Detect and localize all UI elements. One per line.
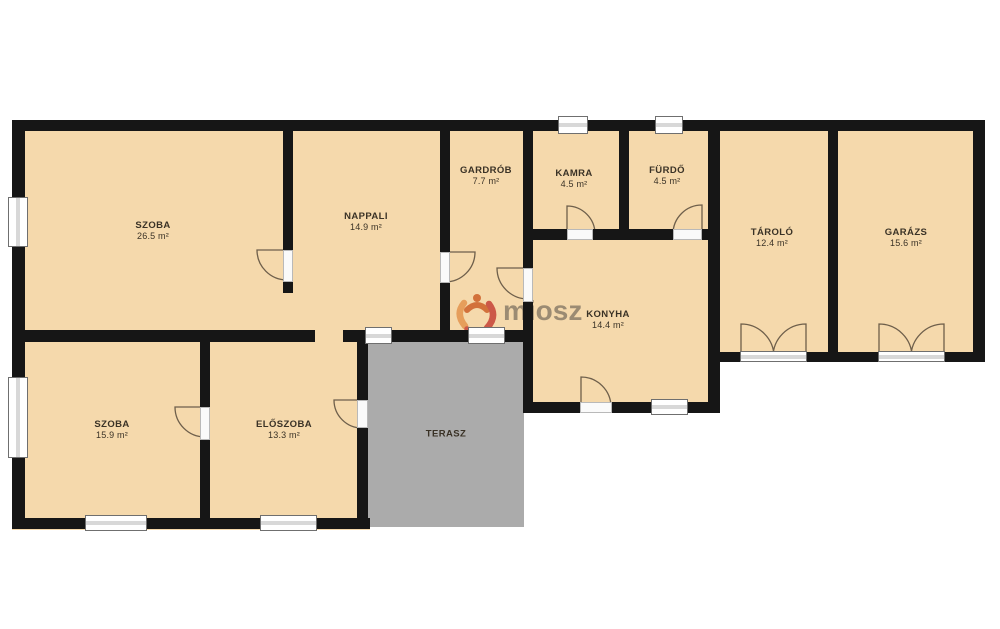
window: [8, 197, 28, 247]
floorplan-canvas: mioszSZOBA26.5 m²NAPPALI14.9 m²GARDRÓB7.…: [0, 0, 1000, 629]
room-area: 15.9 m²: [94, 430, 129, 441]
room-name: GARÁZS: [885, 227, 928, 238]
wall: [523, 120, 533, 268]
wall: [283, 282, 293, 293]
room-name: KAMRA: [555, 168, 592, 179]
room-name: TERASZ: [426, 429, 466, 440]
wall: [440, 120, 450, 252]
room-name: NAPPALI: [344, 211, 388, 222]
room-area: 13.3 m²: [256, 430, 312, 441]
wall: [392, 330, 468, 342]
room-name: SZOBA: [94, 419, 129, 430]
room-label-terasz: TERASZ: [426, 429, 466, 440]
window-glass: [559, 123, 587, 127]
room-area: 14.4 m²: [586, 320, 630, 331]
room-name: KONYHA: [586, 309, 630, 320]
door-sill: [440, 252, 450, 283]
room-label-gardrob: GARDRÓB7.7 m²: [460, 165, 512, 187]
wall: [612, 402, 653, 413]
wall: [12, 247, 25, 377]
room-label-konyha: KONYHA14.4 m²: [586, 309, 630, 331]
room-area: 4.5 m²: [555, 179, 592, 190]
wall: [357, 428, 368, 529]
door-sill: [283, 250, 293, 282]
room-area: 26.5 m²: [135, 231, 170, 242]
window: [85, 515, 147, 531]
wall: [973, 120, 985, 362]
room-name: SZOBA: [135, 220, 170, 231]
room-label-nappali: NAPPALI14.9 m²: [344, 211, 388, 233]
window-glass: [656, 123, 682, 127]
door-sill: [673, 229, 702, 240]
window: [468, 327, 505, 344]
room-area: 14.9 m²: [344, 222, 388, 233]
window: [655, 116, 683, 134]
window: [878, 351, 945, 362]
wall: [807, 352, 878, 362]
window-glass: [16, 378, 20, 457]
window: [365, 327, 392, 344]
room-name: FÜRDŐ: [649, 165, 685, 176]
room-name: GARDRÓB: [460, 165, 512, 176]
room-name: ELŐSZOBA: [256, 419, 312, 430]
room-label-tarolo: TÁROLÓ12.4 m²: [751, 227, 794, 249]
window-glass: [366, 334, 391, 338]
room-label-szoba-1: SZOBA26.5 m²: [135, 220, 170, 242]
wall: [440, 283, 450, 342]
room-area: 15.6 m²: [885, 238, 928, 249]
room-label-szoba-2: SZOBA15.9 m²: [94, 419, 129, 441]
window-glass: [16, 198, 20, 246]
room-label-eloszoba: ELŐSZOBA13.3 m²: [256, 419, 312, 441]
door-sill: [200, 407, 210, 440]
door-swing-arcs: [0, 0, 1000, 629]
wall: [828, 120, 838, 362]
window-glass: [879, 355, 944, 359]
window-glass: [86, 521, 146, 525]
room-area: 12.4 m²: [751, 238, 794, 249]
window-glass: [469, 334, 504, 338]
door-sill: [357, 400, 368, 428]
wall: [12, 330, 315, 342]
wall: [12, 120, 985, 131]
wall: [12, 120, 25, 197]
wall: [200, 440, 210, 529]
window: [260, 515, 317, 531]
room-label-kamra: KAMRA4.5 m²: [555, 168, 592, 190]
door-sill: [580, 402, 612, 413]
wall: [12, 458, 25, 529]
window-glass: [652, 405, 687, 409]
wall: [619, 120, 629, 240]
door-sill: [567, 229, 593, 240]
room-label-garazs: GARÁZS15.6 m²: [885, 227, 928, 249]
wall: [283, 120, 293, 250]
window: [740, 351, 807, 362]
window: [558, 116, 588, 134]
window-glass: [261, 521, 316, 525]
wall: [200, 340, 210, 407]
window: [8, 377, 28, 458]
window: [651, 399, 688, 415]
wall: [523, 302, 533, 412]
room-area: 4.5 m²: [649, 176, 685, 187]
room-label-furdo: FÜRDŐ4.5 m²: [649, 165, 685, 187]
window-glass: [741, 355, 806, 359]
wall: [708, 120, 720, 412]
room-area: 7.7 m²: [460, 176, 512, 187]
door-sill: [523, 268, 533, 302]
room-name: TÁROLÓ: [751, 227, 794, 238]
